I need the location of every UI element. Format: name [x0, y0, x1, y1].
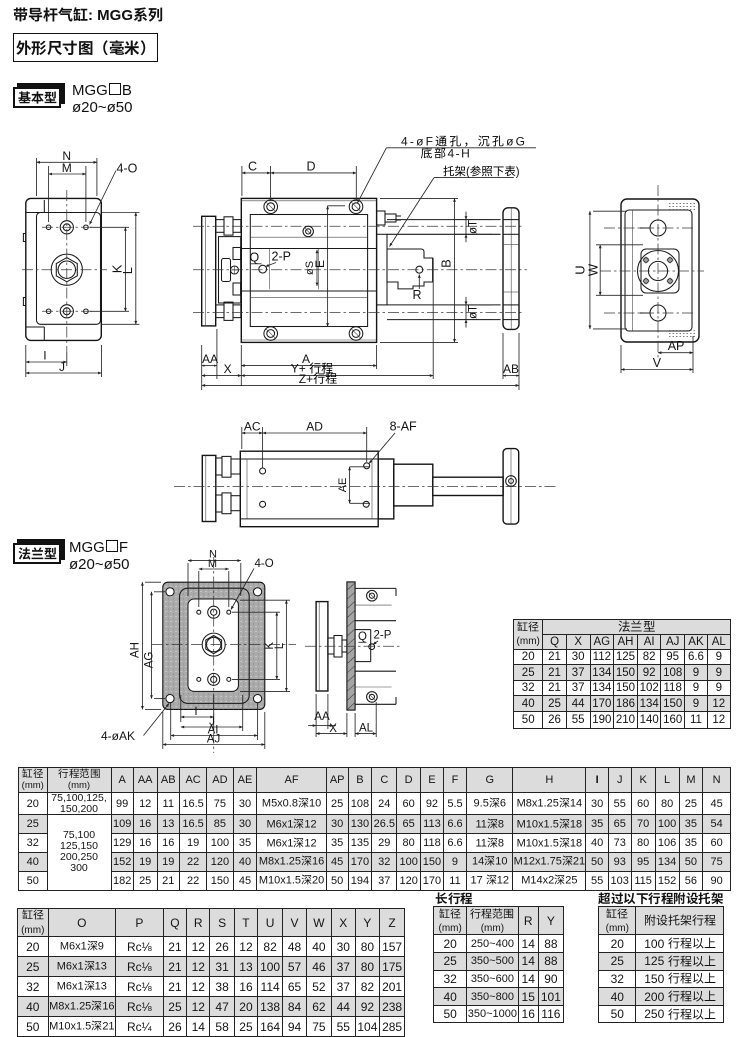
- svg-text:M: M: [62, 161, 72, 175]
- svg-text:4-O: 4-O: [117, 162, 138, 176]
- svg-text:B: B: [439, 259, 454, 268]
- svg-text:4-O: 4-O: [255, 558, 274, 570]
- svg-text:W: W: [585, 263, 600, 276]
- svg-text:AE: AE: [337, 478, 349, 493]
- svg-text:4-H: 4-H: [448, 147, 472, 161]
- svg-text:AA: AA: [314, 711, 330, 723]
- svg-text:D: D: [307, 160, 316, 174]
- svg-text:L: L: [274, 642, 286, 649]
- svg-text:AL: AL: [359, 722, 374, 734]
- svg-text:8-AF: 8-AF: [390, 420, 417, 434]
- svg-text:2-P: 2-P: [272, 250, 291, 264]
- svg-text:AA: AA: [202, 352, 218, 366]
- svg-text:AD: AD: [306, 420, 323, 434]
- svg-text:J: J: [59, 360, 65, 374]
- svg-text:Z+: Z+: [299, 372, 313, 386]
- svg-text:AG: AG: [144, 652, 156, 669]
- svg-text:M: M: [208, 558, 217, 570]
- svg-text:AC: AC: [244, 420, 261, 434]
- svg-text:X: X: [224, 362, 232, 376]
- svg-text:øT: øT: [468, 305, 480, 319]
- svg-text:Q: Q: [358, 631, 367, 643]
- svg-text:C: C: [248, 160, 257, 174]
- svg-text:(: (: [466, 166, 470, 178]
- svg-text:E: E: [313, 260, 327, 268]
- svg-text:X: X: [329, 723, 337, 735]
- svg-text:I: I: [43, 349, 46, 363]
- svg-text:AP: AP: [668, 339, 685, 353]
- svg-text:I: I: [194, 706, 197, 718]
- svg-text:AB: AB: [503, 362, 519, 376]
- svg-text:R: R: [413, 288, 422, 302]
- svg-text:): ): [516, 166, 520, 178]
- svg-text:øT: øT: [468, 220, 480, 234]
- svg-text:2-P: 2-P: [374, 630, 392, 642]
- svg-text:AJ: AJ: [207, 733, 220, 745]
- svg-text:4-øAK: 4-øAK: [101, 729, 135, 743]
- svg-text:L: L: [120, 267, 135, 274]
- svg-text:4-øF: 4-øF: [401, 135, 435, 149]
- svg-text:V: V: [653, 356, 662, 370]
- svg-text:Q: Q: [250, 251, 260, 265]
- svg-text:øG: øG: [506, 135, 527, 149]
- svg-text:AH: AH: [130, 642, 142, 658]
